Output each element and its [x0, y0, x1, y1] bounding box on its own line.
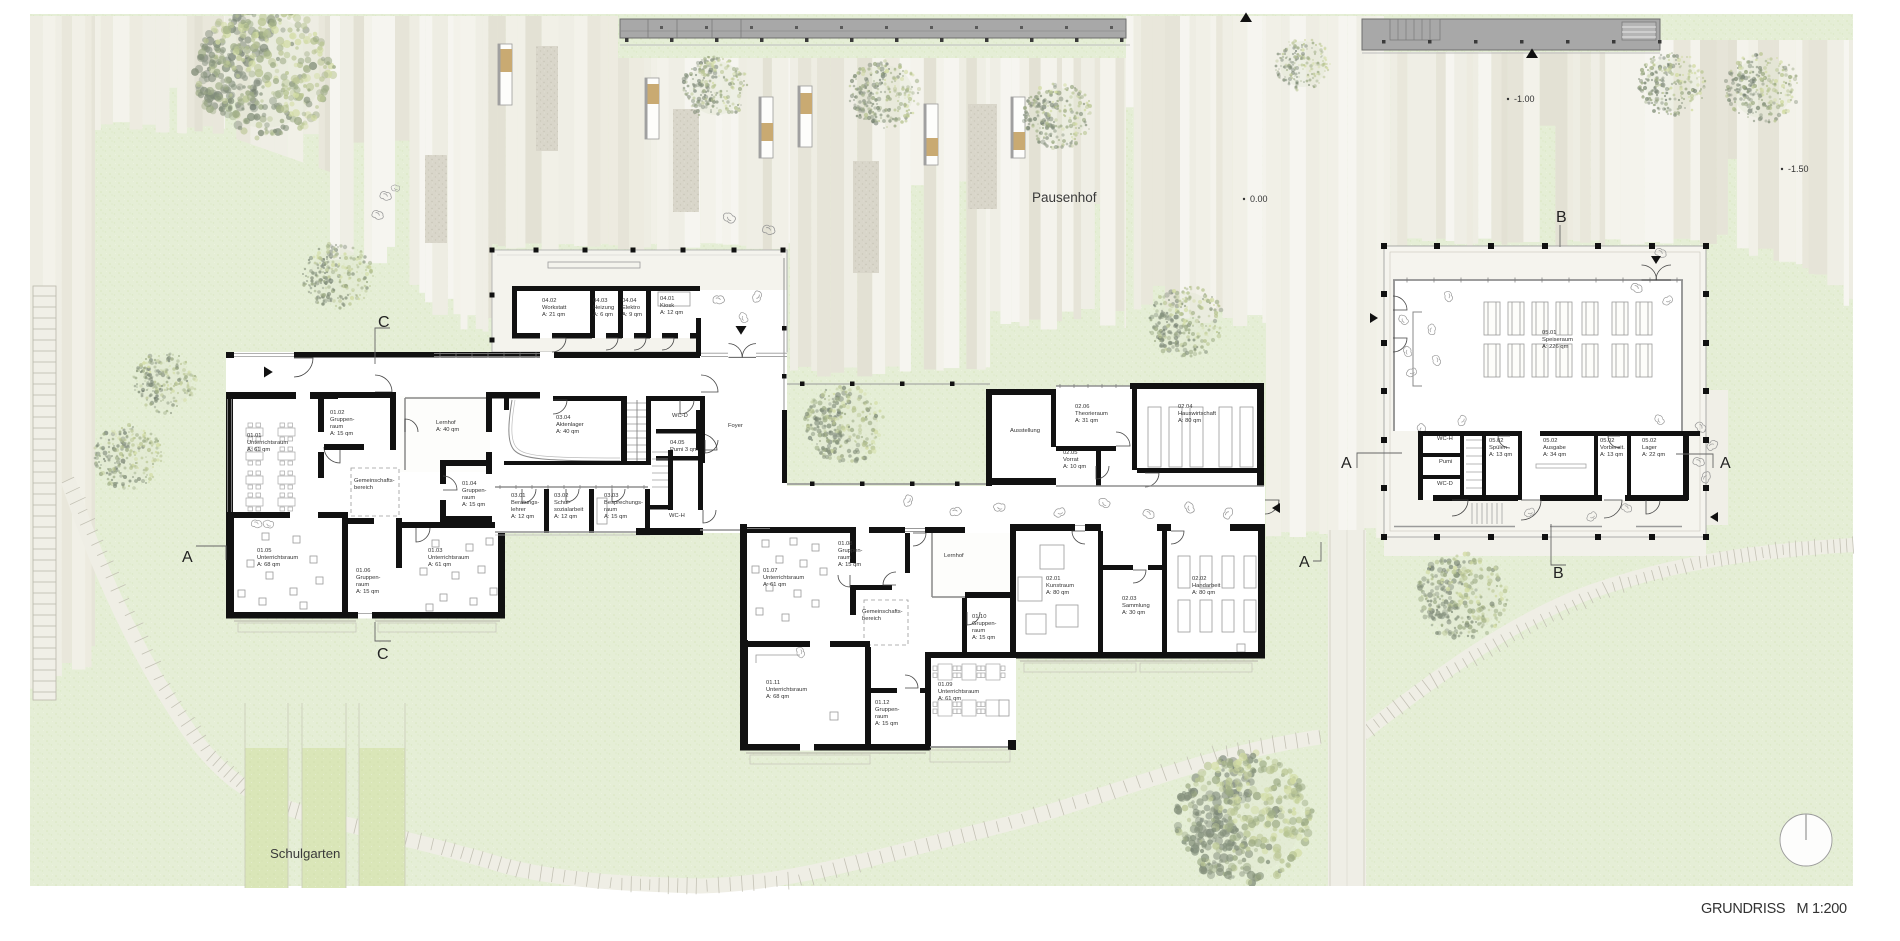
svg-text:Pumi: Pumi [1439, 459, 1452, 465]
svg-text:Schulgarten: Schulgarten [270, 846, 340, 861]
svg-text:WC-H: WC-H [1437, 436, 1453, 442]
svg-text:-1.50: -1.50 [1788, 164, 1809, 174]
svg-text:Ausstellung: Ausstellung [1010, 428, 1040, 434]
svg-text:C: C [378, 314, 390, 331]
svg-text:WC-D: WC-D [1437, 481, 1453, 487]
svg-text:Foyer: Foyer [728, 423, 743, 429]
svg-text:-1.00: -1.00 [1514, 94, 1535, 104]
svg-text:Lernhof: Lernhof [944, 553, 964, 559]
svg-text:GRUNDRISS M 1:200: GRUNDRISS M 1:200 [1701, 901, 1847, 917]
svg-text:B: B [1553, 565, 1564, 582]
svg-text:C: C [377, 646, 389, 663]
svg-text:Pausenhof: Pausenhof [1032, 190, 1097, 205]
svg-text:A: A [1341, 455, 1352, 472]
svg-text:WC-H: WC-H [669, 513, 685, 519]
svg-text:0.00: 0.00 [1250, 194, 1268, 204]
svg-text:A: A [182, 549, 193, 566]
svg-text:A: A [1720, 455, 1731, 472]
svg-text:WC-D: WC-D [672, 413, 688, 419]
svg-text:B: B [1556, 209, 1567, 226]
svg-text:A: A [1299, 554, 1310, 571]
